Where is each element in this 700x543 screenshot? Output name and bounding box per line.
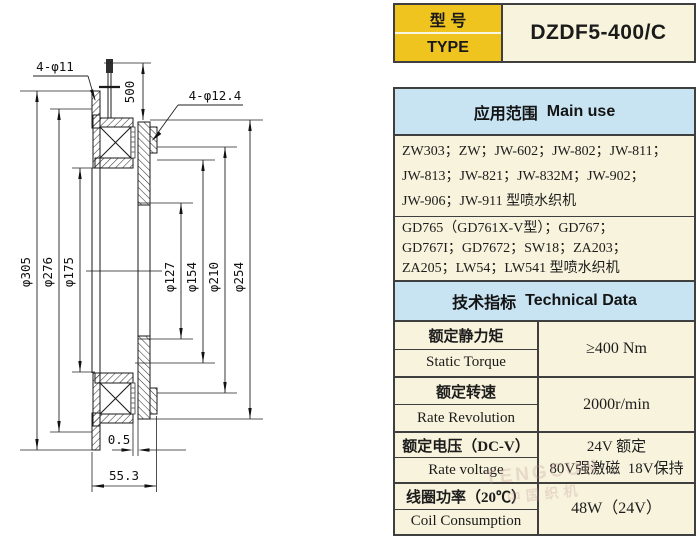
spec-panel: 型 号 TYPE DZDF5-400/C 应用范围 Main use ZW303…: [390, 0, 700, 538]
tech-value-line: 2000r/min: [583, 394, 650, 416]
dim-label-d154: φ154: [184, 262, 199, 292]
tech-value-line: 48W（24V）: [571, 498, 662, 520]
total-width-label: 55.3: [109, 468, 139, 483]
leader-armature-holes: 4-φ12.4: [152, 88, 244, 141]
spec-table: 应用范围 Main use ZW303；ZW；JW-602；JW-802；JW-…: [393, 87, 696, 536]
technical-title-cn: 技术指标: [452, 289, 516, 313]
main-use-line: ZW303；ZW；JW-602；JW-802；JW-811；: [402, 139, 690, 164]
tech-label-cn: 额定电压（DC-V）: [395, 433, 537, 458]
dimension-arrow: [141, 63, 144, 74]
datasheet-page: { "colors": { "yellow": "#EFC41F", "crea…: [0, 0, 700, 538]
dim-total-width: 55.3: [92, 416, 157, 492]
tech-value-line: 24V 额定: [587, 436, 646, 458]
tech-value-line: ≥400 Nm: [586, 338, 647, 360]
cad-cross-section-drawing: φ305φ276φ175φ127φ154φ210φ254500 4-φ11 4-…: [0, 0, 390, 538]
main-use-title-en: Main use: [547, 103, 615, 121]
leader-flange-holes: 4-φ11: [33, 59, 96, 101]
dimension-arrow: [35, 439, 38, 450]
dim-label-wire: 500: [122, 81, 137, 104]
technical-data-header: 技术指标 Technical Data: [395, 280, 694, 320]
dimension-arrow: [248, 120, 251, 131]
tech-label-en: Rate Revolution: [395, 405, 537, 431]
type-plate: 型 号 TYPE DZDF5-400/C: [393, 3, 696, 63]
main-use-line: ZA205；LW54；LW541 型喷水织机: [402, 259, 690, 279]
type-label-en: TYPE: [395, 34, 501, 61]
dimension-arrow: [35, 91, 38, 102]
model-number: DZDF5-400/C: [503, 5, 694, 61]
tech-value: 2000r/min: [539, 378, 694, 431]
dimension-arrow: [78, 361, 81, 372]
dim-label-d305: φ305: [18, 257, 33, 287]
dimension-arrow: [78, 168, 81, 179]
tech-value: ≥400 Nm: [539, 322, 694, 376]
air-gap-label: 0.5: [108, 432, 131, 447]
dim-label-d210: φ210: [206, 262, 221, 292]
tech-label: 额定转速 Rate Revolution: [395, 378, 539, 431]
dimension-arrow: [223, 382, 226, 393]
dimension-arrow: [201, 160, 204, 171]
armature-holes-label: 4-φ12.4: [189, 88, 242, 103]
dimension-arrow: [201, 352, 204, 363]
tech-label: 额定静力矩 Static Torque: [395, 322, 539, 376]
main-use-line: JW-906；JW-911 型喷水织机: [402, 189, 690, 214]
bolt-hole-bottom: [150, 388, 157, 414]
tech-row-rate-voltage: 额定电压（DC-V） Rate voltage 24V 额定 80V强激磁 18…: [395, 431, 694, 482]
tech-row-rate-revolution: 额定转速 Rate Revolution 2000r/min: [395, 376, 694, 431]
tech-label-cn: 额定转速: [395, 378, 537, 405]
main-use-line: GD767I；GD7672；SW18；ZA203；: [402, 239, 690, 259]
bolt-hole-top: [150, 127, 157, 153]
main-use-group-1: ZW303；ZW；JW-602；JW-802；JW-811； JW-813；JW…: [395, 134, 694, 216]
dim-label-d127: φ127: [162, 262, 177, 292]
dim-air-gap: 0.5: [108, 419, 186, 456]
type-plate-labels: 型 号 TYPE: [395, 5, 503, 61]
dimension-arrow: [223, 147, 226, 158]
dimension-arrow: [179, 203, 182, 214]
dimension-arrow: [57, 421, 60, 432]
type-label-cn: 型 号: [395, 5, 501, 34]
main-use-title-cn: 应用范围: [474, 100, 538, 124]
flange-holes-label: 4-φ11: [36, 59, 74, 74]
dimension-arrow: [179, 328, 182, 339]
tech-label-en: Rate voltage: [395, 458, 537, 482]
tech-row-static-torque: 额定静力矩 Static Torque ≥400 Nm: [395, 320, 694, 376]
tech-label: 线圈功率（20℃） Coil Consumption: [395, 484, 539, 534]
lead-wire: [99, 59, 120, 118]
tech-label: 额定电压（DC-V） Rate voltage: [395, 433, 539, 482]
tech-value-line: 80V强激磁 18V保持: [549, 458, 683, 480]
tech-label-en: Coil Consumption: [395, 510, 537, 535]
dim-label-d276: φ276: [40, 257, 55, 287]
dim-label-d254: φ254: [231, 262, 246, 292]
tech-label-cn: 线圈功率（20℃）: [395, 484, 537, 510]
dim-label-d175: φ175: [61, 257, 76, 287]
tech-label-cn: 额定静力矩: [395, 322, 537, 350]
tech-value: 24V 额定 80V强激磁 18V保持: [539, 433, 694, 482]
main-use-header: 应用范围 Main use: [395, 89, 694, 134]
dimension-arrow: [248, 408, 251, 419]
main-use-line: JW-813；JW-821；JW-832M；JW-902；: [402, 164, 690, 189]
cad-svg: φ305φ276φ175φ127φ154φ210φ254500 4-φ11 4-…: [0, 0, 390, 538]
tech-row-coil-consumption: 线圈功率（20℃） Coil Consumption 48W（24V）: [395, 482, 694, 534]
tech-value: 48W（24V）: [539, 484, 694, 534]
main-use-line: GD765（GD761X-V型）；GD767；: [402, 219, 690, 239]
armature-section: [138, 122, 157, 419]
structure-lines: [86, 168, 162, 373]
main-use-group-2: GD765（GD761X-V型）；GD767； GD767I；GD7672；SW…: [395, 216, 694, 280]
dimension-arrow: [57, 109, 60, 120]
technical-title-en: Technical Data: [525, 292, 637, 310]
tech-label-en: Static Torque: [395, 350, 537, 377]
dimension-arrow: [141, 109, 144, 120]
